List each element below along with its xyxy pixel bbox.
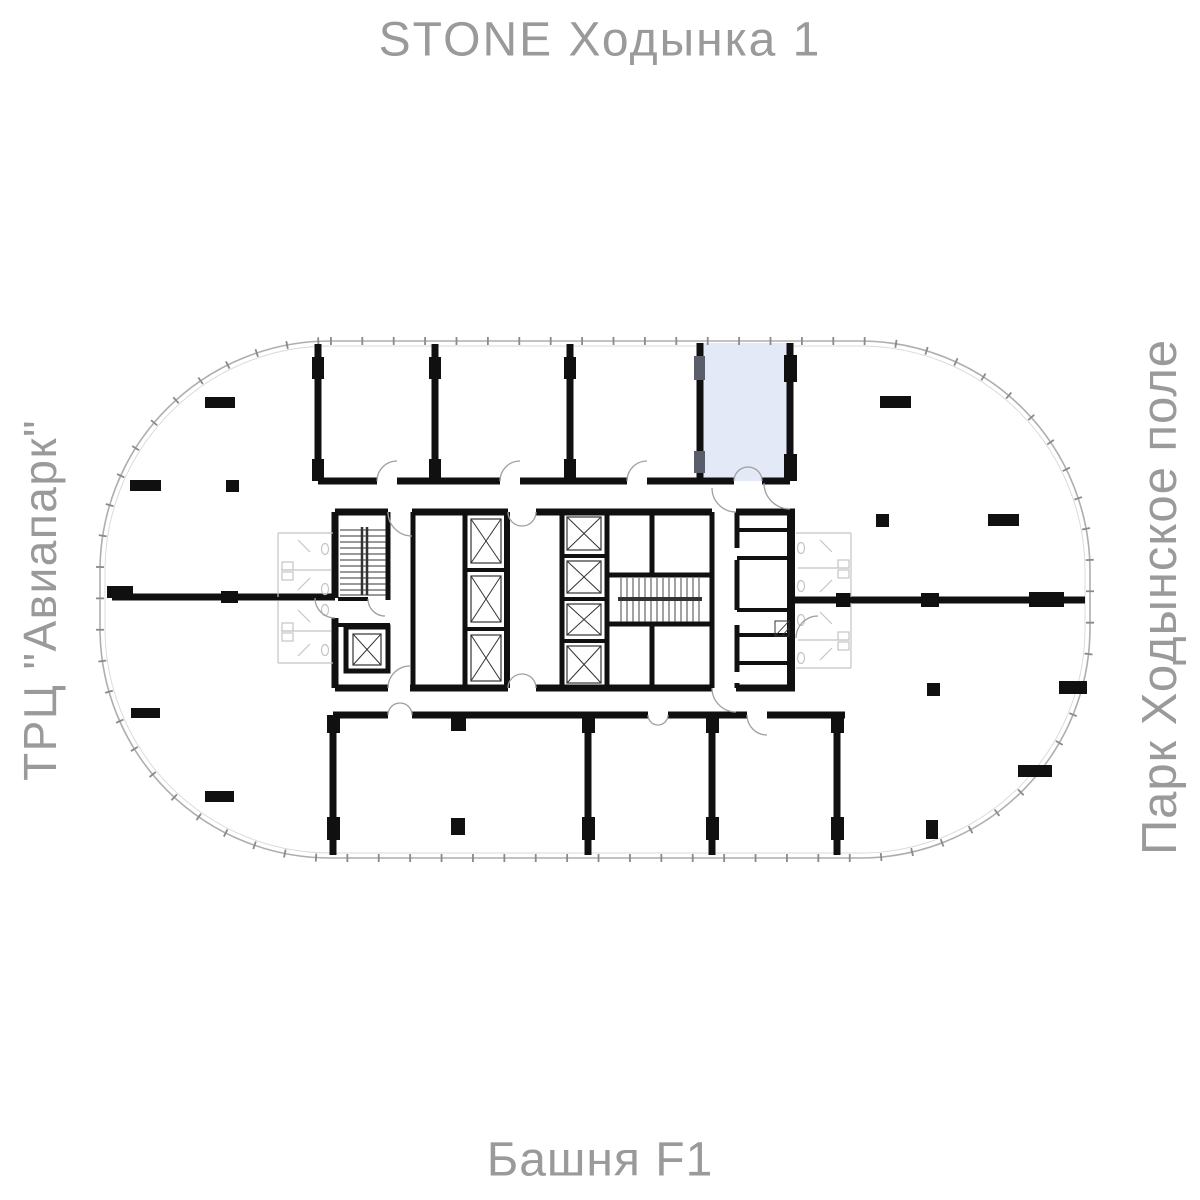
core [335,512,795,688]
stair-center [618,578,702,622]
floor-plan-page: STONE Ходынка 1 ТРЦ "Авиапарк" Парк Ходы… [0,0,1200,1200]
elevator-bank-a [471,519,501,681]
stair-left [340,527,386,595]
elevator-small [346,627,388,671]
floor-plan-svg [0,0,1200,1200]
bottom-row-walls [327,715,845,855]
selected-unit[interactable] [700,343,790,481]
